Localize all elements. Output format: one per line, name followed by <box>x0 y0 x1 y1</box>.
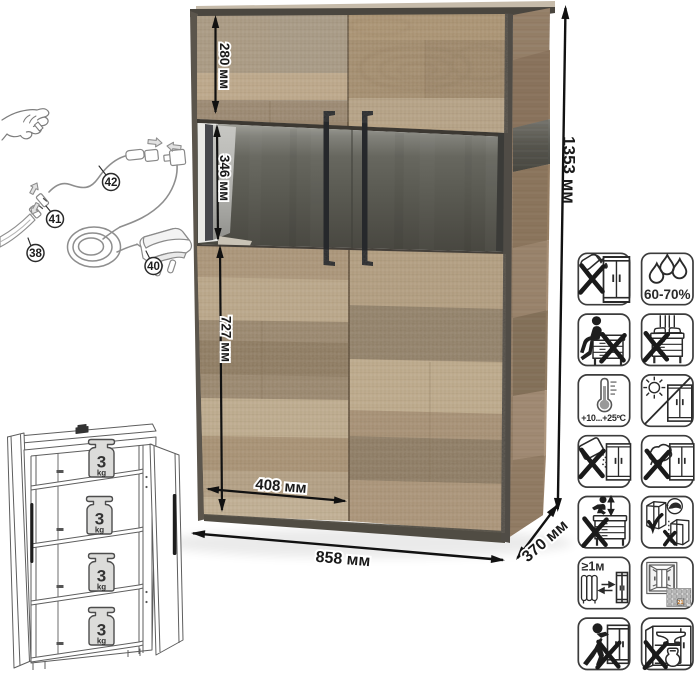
svg-text:60-70%: 60-70% <box>644 287 691 302</box>
svg-text:≥1м: ≥1м <box>582 560 605 574</box>
svg-text:41: 41 <box>49 214 62 226</box>
svg-text:1353 мм: 1353 мм <box>560 136 579 204</box>
svg-text:+10...+25ºC: +10...+25ºC <box>581 413 626 423</box>
svg-text:38: 38 <box>29 248 42 260</box>
svg-text:858 мм: 858 мм <box>315 549 371 570</box>
svg-text:42: 42 <box>105 177 118 189</box>
svg-text:727 мм: 727 мм <box>219 316 234 362</box>
svg-text:346 мм: 346 мм <box>217 155 232 201</box>
svg-text:280 мм: 280 мм <box>217 43 232 89</box>
svg-text:21: 21 <box>677 600 683 606</box>
svg-text:40: 40 <box>147 261 160 273</box>
